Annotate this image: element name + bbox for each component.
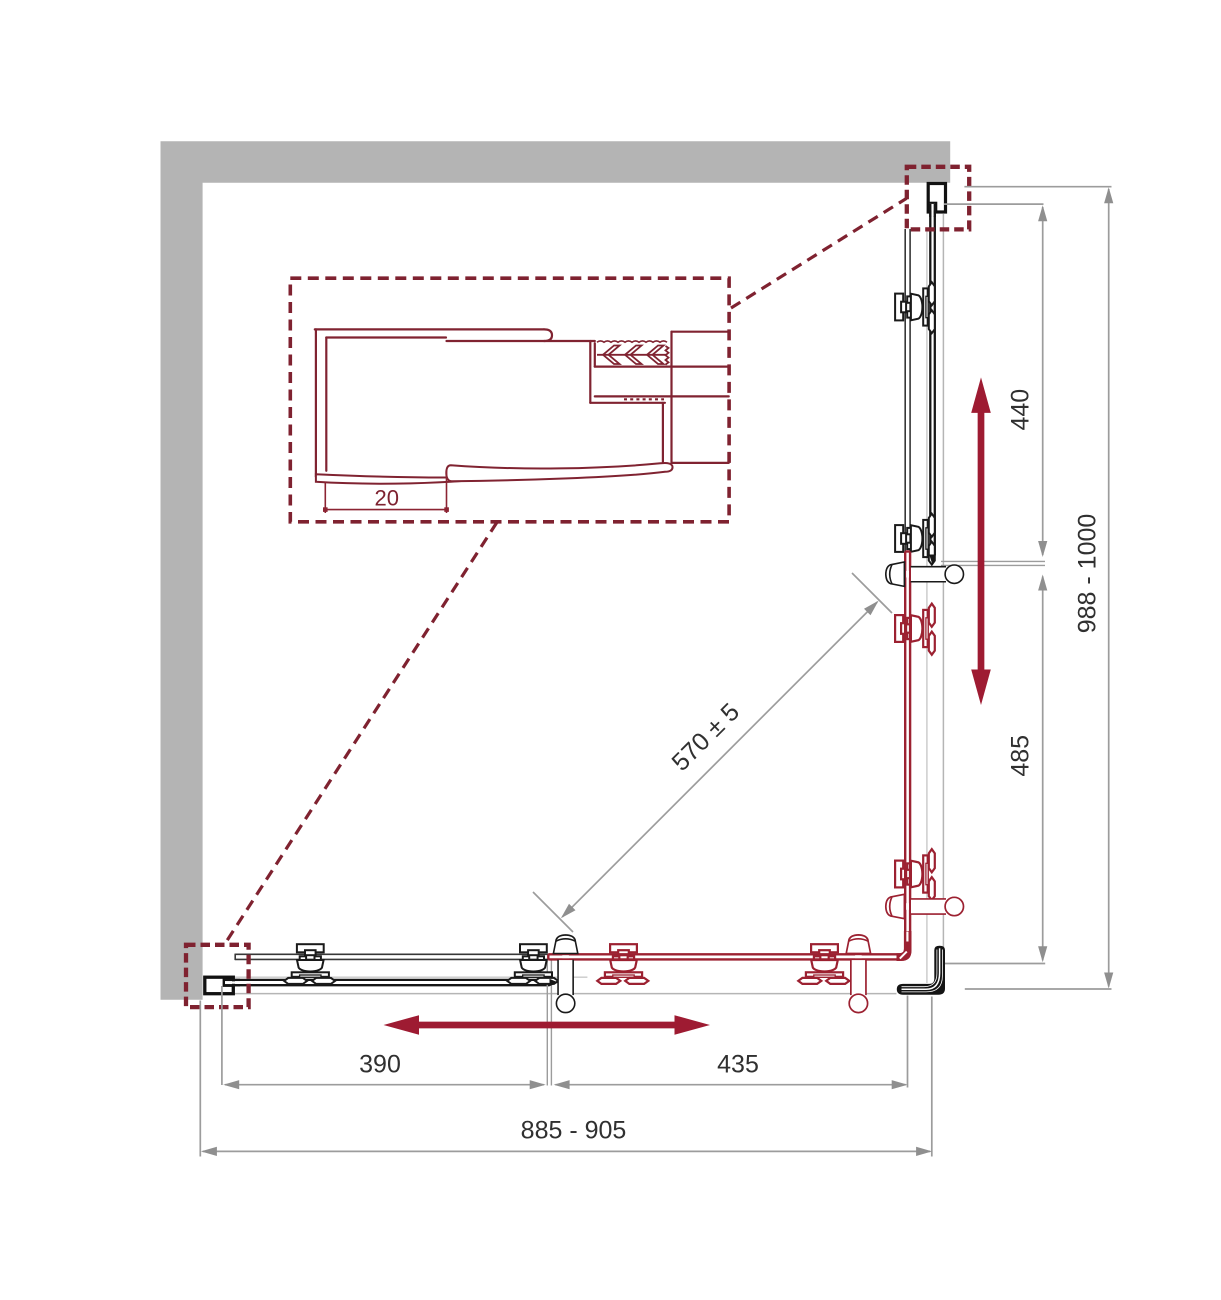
svg-text:485: 485: [1007, 735, 1035, 777]
svg-text:570 ± 5: 570 ± 5: [666, 698, 745, 777]
svg-text:885 - 905: 885 - 905: [521, 1117, 627, 1145]
svg-text:390: 390: [359, 1051, 401, 1079]
svg-text:20: 20: [375, 486, 399, 511]
svg-text:988 - 1000: 988 - 1000: [1074, 514, 1102, 634]
svg-text:435: 435: [717, 1051, 759, 1079]
svg-text:440: 440: [1006, 389, 1034, 431]
